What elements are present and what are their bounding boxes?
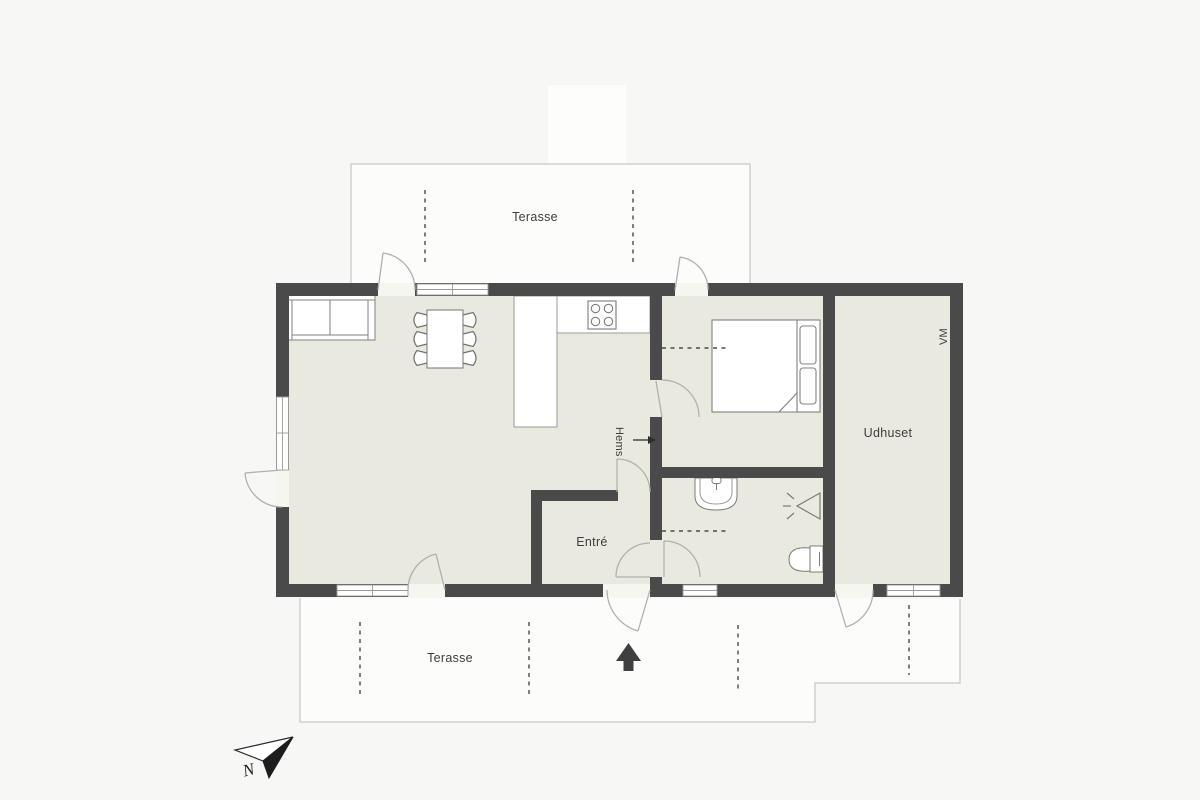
sink [695, 478, 737, 511]
floor-plan: Terasse Terasse Entré Udhuset Hems VM N [0, 0, 1200, 800]
chair [414, 332, 427, 347]
pillow [800, 368, 816, 404]
entry-opening [618, 490, 650, 501]
sofa [283, 293, 375, 340]
wall-living-divider-upper [650, 296, 662, 380]
bedroom-door-opening [650, 380, 662, 417]
chair [463, 313, 476, 328]
compass-n-label: N [240, 759, 258, 781]
watermark-blur [548, 85, 626, 164]
pillow [800, 326, 816, 364]
wall-living-divider-lower [650, 577, 662, 584]
double-bed [712, 320, 820, 412]
label-entry: Entré [576, 535, 607, 549]
chair [414, 351, 427, 366]
wall-living-divider-mid [650, 417, 662, 540]
wall-entry-top [531, 490, 618, 501]
label-outhouse: Udhuset [864, 426, 913, 440]
bathroom-door-opening [650, 540, 662, 577]
floor-plan-canvas: Terasse Terasse Entré Udhuset Hems VM N [0, 0, 1200, 800]
wall-outhouse-divider [823, 296, 835, 584]
label-loft: Hems [613, 427, 625, 457]
dining-set [414, 310, 476, 368]
north-arrow-icon: N [235, 737, 293, 781]
toilet [789, 546, 823, 572]
terrace-north-outline [351, 164, 750, 285]
dining-table [427, 310, 463, 368]
label-terrace-north: Terasse [512, 210, 558, 224]
wall-entry-left [531, 490, 542, 584]
wall-bedroom-bathroom [650, 467, 835, 478]
label-washing-machine: VM [938, 328, 950, 345]
stove [588, 301, 616, 329]
chair [463, 332, 476, 347]
chair [414, 313, 427, 328]
wall-east [950, 283, 963, 597]
chair [463, 351, 476, 366]
label-terrace-south: Terasse [427, 651, 473, 665]
